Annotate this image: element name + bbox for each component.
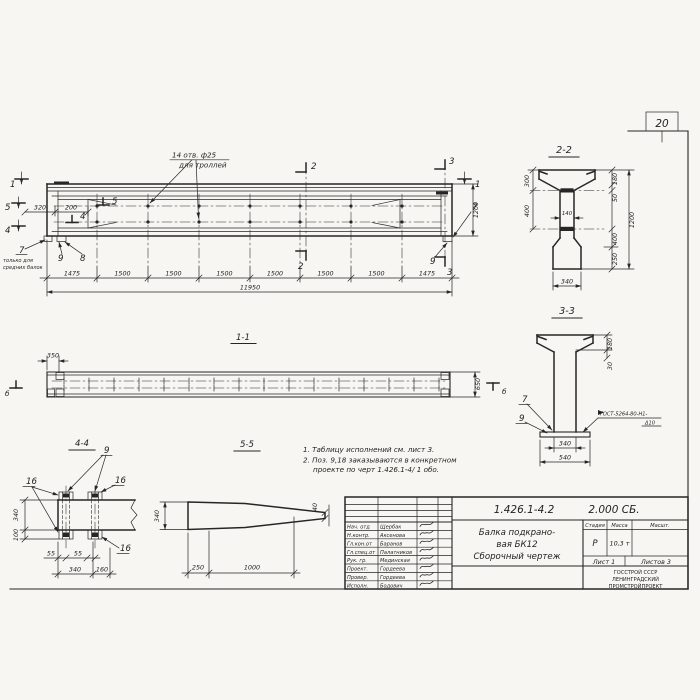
weld-callout: ГОСТ-5264-80-Н1- Δ10 (583, 410, 661, 432)
staff-role-1: Н.контр. (347, 533, 370, 539)
dim-400-right: 400 (611, 233, 619, 245)
cut-label-2-top: 2 (311, 162, 316, 172)
staff-name-6: Гордеева (380, 575, 405, 581)
dim-chain-1: 1500 (114, 270, 130, 278)
dim-chain-4: 1500 (267, 270, 283, 278)
pos-9-right: 9 (430, 257, 435, 267)
pos-9-44: 9 (104, 446, 109, 456)
cut-label-2-bottom: 2 (298, 262, 303, 272)
section-3-3: 3-3 180 30 7 9 ГОСТ-5264-80-Н1- Δ10 (516, 306, 661, 466)
dim-350: 350 (38, 352, 68, 373)
dim-350-text: 350 (47, 352, 59, 360)
dim-250-55: 250 (192, 564, 204, 572)
pos-7-note-line2: средних балок (3, 265, 44, 271)
note-2: 2. Поз. 9,18 заказываются в конкретном (303, 456, 457, 465)
org-line2: ЛЕНИНГРАДСКИЙ (612, 576, 659, 583)
drawing-sheet: 20 14 отв. ф25 для троллей (0, 0, 700, 700)
staff-name-0: Щербак (380, 525, 402, 531)
dim-200: 200 (65, 204, 77, 212)
positions-left-end: 7 только для средних балок 9 8 (3, 240, 86, 271)
title-block: Нач. отд Щербак Н.контр. Аксенова Гл.кон… (345, 497, 688, 590)
weld-spec-line1: ГОСТ-5264-80-Н1- (600, 412, 648, 418)
view-markers-b: б б (5, 381, 507, 398)
sheet-number-box: 20 (646, 112, 678, 131)
pos-9-33: 9 (519, 414, 524, 424)
cut-label-1-right: 1 (475, 180, 480, 190)
dim-chain-5: 1500 (317, 270, 333, 278)
weld-spec-line2: Δ10 (644, 421, 655, 427)
staff-name-3: Палатников (380, 550, 412, 556)
note-2-cont: проекте по черт 1.426.1-4/ 1 обо. (313, 465, 439, 474)
dim-chain-0: 1475 (64, 270, 80, 278)
cut-label-5-left: 5 (5, 203, 10, 213)
dim-55-b: 55 (74, 550, 82, 558)
dim-160-44: 160 (96, 566, 108, 574)
sheet-number: 20 (655, 118, 669, 130)
dim-340-22: 340 (553, 272, 581, 290)
titleblock-staff-rows: Нач. отд Щербак Н.контр. Аксенова Гл.кон… (347, 523, 433, 590)
staff-name-4: Мединская (380, 558, 410, 564)
dim-30-33: 30 (606, 362, 614, 370)
doc-suffix: 2.000 СБ. (588, 504, 639, 516)
stage-label: Стадия (585, 523, 605, 529)
dims-5-5-bottom: 250 1000 (182, 517, 300, 578)
pos-9-left: 9 (58, 254, 63, 264)
dim-40-55: 40 (311, 503, 329, 526)
section-3-3-title: 3-3 (559, 306, 575, 317)
cleats (59, 492, 102, 539)
staff-role-4: Рук. гр. (347, 558, 367, 564)
dim-250-22: 250 (611, 253, 619, 265)
dim-total-11950: 11950 (240, 284, 260, 292)
sheets-field: Листов 3 (640, 558, 671, 566)
dim-40-55-text: 40 (311, 503, 319, 511)
staff-name-2: Баранов (380, 541, 402, 547)
dim-140: 140 (562, 211, 573, 217)
dim-180-33: 180 (606, 338, 614, 350)
doc-title-line2: вая БК12 (496, 540, 537, 550)
mass-value: 10,3 т (610, 540, 630, 548)
drawing-canvas: 20 14 отв. ф25 для троллей (0, 0, 700, 700)
dim-340-22-text: 340 (561, 278, 573, 286)
dim-chain-7: 1475 (419, 270, 435, 278)
org-line1: ГОССТРОЙ СССР (614, 569, 658, 576)
dim-180-22: 180 (611, 173, 619, 185)
pos-7-note-line1: только для (3, 258, 33, 264)
dim-650: 650 (450, 372, 482, 397)
cut-label-3-bottom: 3 (447, 268, 452, 278)
pos-16-left: 16 (26, 477, 37, 487)
trolley-holes (95, 204, 403, 223)
dim-340-44-left: 340 (12, 509, 20, 521)
cut-label-4-left: 4 (5, 226, 10, 236)
dim-340-44-bottom: 340 (69, 566, 81, 574)
pos-16-bottom-right: 16 (120, 544, 131, 554)
dim-340-33: 340 (559, 440, 571, 448)
dim-340-55-text: 340 (153, 510, 161, 522)
dim-140-web: 140 (551, 211, 583, 218)
dims-3-3-bottom: 340 540 (540, 437, 590, 466)
signature-marks (420, 523, 433, 586)
cut-label-3-top: 3 (449, 157, 454, 167)
marker-b-left: б (5, 389, 10, 398)
dim-400-left: 400 (523, 205, 531, 217)
dim-340-55: 340 (153, 502, 188, 530)
staff-role-6: Провер. (347, 575, 368, 581)
dim-320: 320 (34, 204, 46, 212)
dim-1200-22: 1200 (628, 212, 636, 228)
staff-role-2: Гл.кон.от (347, 541, 373, 547)
view-1-1-title: 1-1 (236, 333, 250, 343)
dim-chain-3: 1500 (216, 270, 232, 278)
view-1-1: 1-1 350 650 б б (5, 333, 507, 398)
org-line3: ПРОМСТРОЙПРОЕКТ (609, 583, 664, 590)
holes-callout-line2: для троллей (178, 161, 227, 170)
doc-title-line1: Балка подкрано- (479, 528, 556, 538)
doc-title-line3: Сборочный чертеж (474, 552, 561, 562)
main-elevation-view: 14 отв. ф25 для троллей 2 2 3 3 1 5 4 (3, 151, 480, 297)
cut-label-1-left: 1 (10, 180, 15, 190)
section-cut-2: 2 2 (296, 162, 316, 272)
dim-650-text: 650 (474, 378, 482, 390)
marker-b-right: б (502, 387, 507, 396)
staff-role-5: Проект. (347, 567, 368, 573)
dim-300: 300 (523, 175, 531, 187)
dim-chain-2: 1500 (165, 270, 181, 278)
holes-callout-line1: 14 отв. ф25 (172, 151, 217, 160)
dim-height-1200: 1200 (452, 184, 480, 236)
dim-50-22: 50 (611, 194, 619, 202)
view-4-4: 4-4 9 16 16 16 340 1 (12, 439, 137, 578)
dim-chain-6: 1500 (368, 270, 384, 278)
cut-label-5-inner: 5 (112, 197, 117, 207)
sheet-field: Лист 1 (592, 558, 615, 566)
notes: 1. Таблицу исполнений см. лист 3. 2. Поз… (303, 445, 457, 474)
pos-7-33: 7 (522, 395, 528, 405)
staff-role-7: Исполн. (347, 583, 368, 589)
dims-3-3-right: 180 30 (576, 332, 614, 370)
staff-role-0: Нач. отд (347, 525, 370, 531)
dim-1000-55: 1000 (244, 564, 260, 572)
stage-value: Р (592, 539, 598, 549)
section-2-2-title: 2-2 (556, 145, 572, 156)
dim-100-44: 100 (12, 529, 20, 541)
pos-callouts-3-3: 7 9 (516, 395, 552, 433)
dim-540-33: 540 (559, 454, 571, 462)
mass-label: Масса (611, 523, 627, 529)
staff-name-1: Аксенова (379, 533, 405, 539)
cut-label-4-inner: 4 (80, 212, 85, 222)
scale-label: Масшт. (650, 523, 670, 529)
staff-name-7: Бодович (380, 583, 403, 589)
note-1: 1. Таблицу исполнений см. лист 3. (303, 445, 434, 454)
pos-8-left: 8 (80, 254, 86, 264)
section-2-2: 2-2 300 400 140 180 50 400 250 1200 (523, 145, 636, 290)
cut-marker-1-right: 1 (458, 172, 480, 190)
dim-1200-main: 1200 (472, 202, 480, 218)
staff-role-3: Гл.спец.от (347, 550, 376, 556)
staff-name-5: Гордеева (380, 567, 405, 573)
dims-4-4-left: 340 100 (12, 497, 59, 542)
view-5-5-title: 5-5 (240, 440, 254, 450)
dim-chain: 1475 1500 1500 1500 1500 1500 1500 1475 … (40, 240, 459, 296)
cut-markers-left: 1 5 4 (5, 172, 28, 236)
pos-16-top-right: 16 (115, 476, 126, 486)
doc-number: 1.426.1-4.2 (494, 504, 555, 516)
dims-4-4-bottom: 55 55 340 160 (44, 542, 116, 578)
view-4-4-title: 4-4 (75, 439, 89, 449)
dim-55-a: 55 (47, 550, 55, 558)
dims-2-2-left: 300 400 (523, 167, 539, 232)
